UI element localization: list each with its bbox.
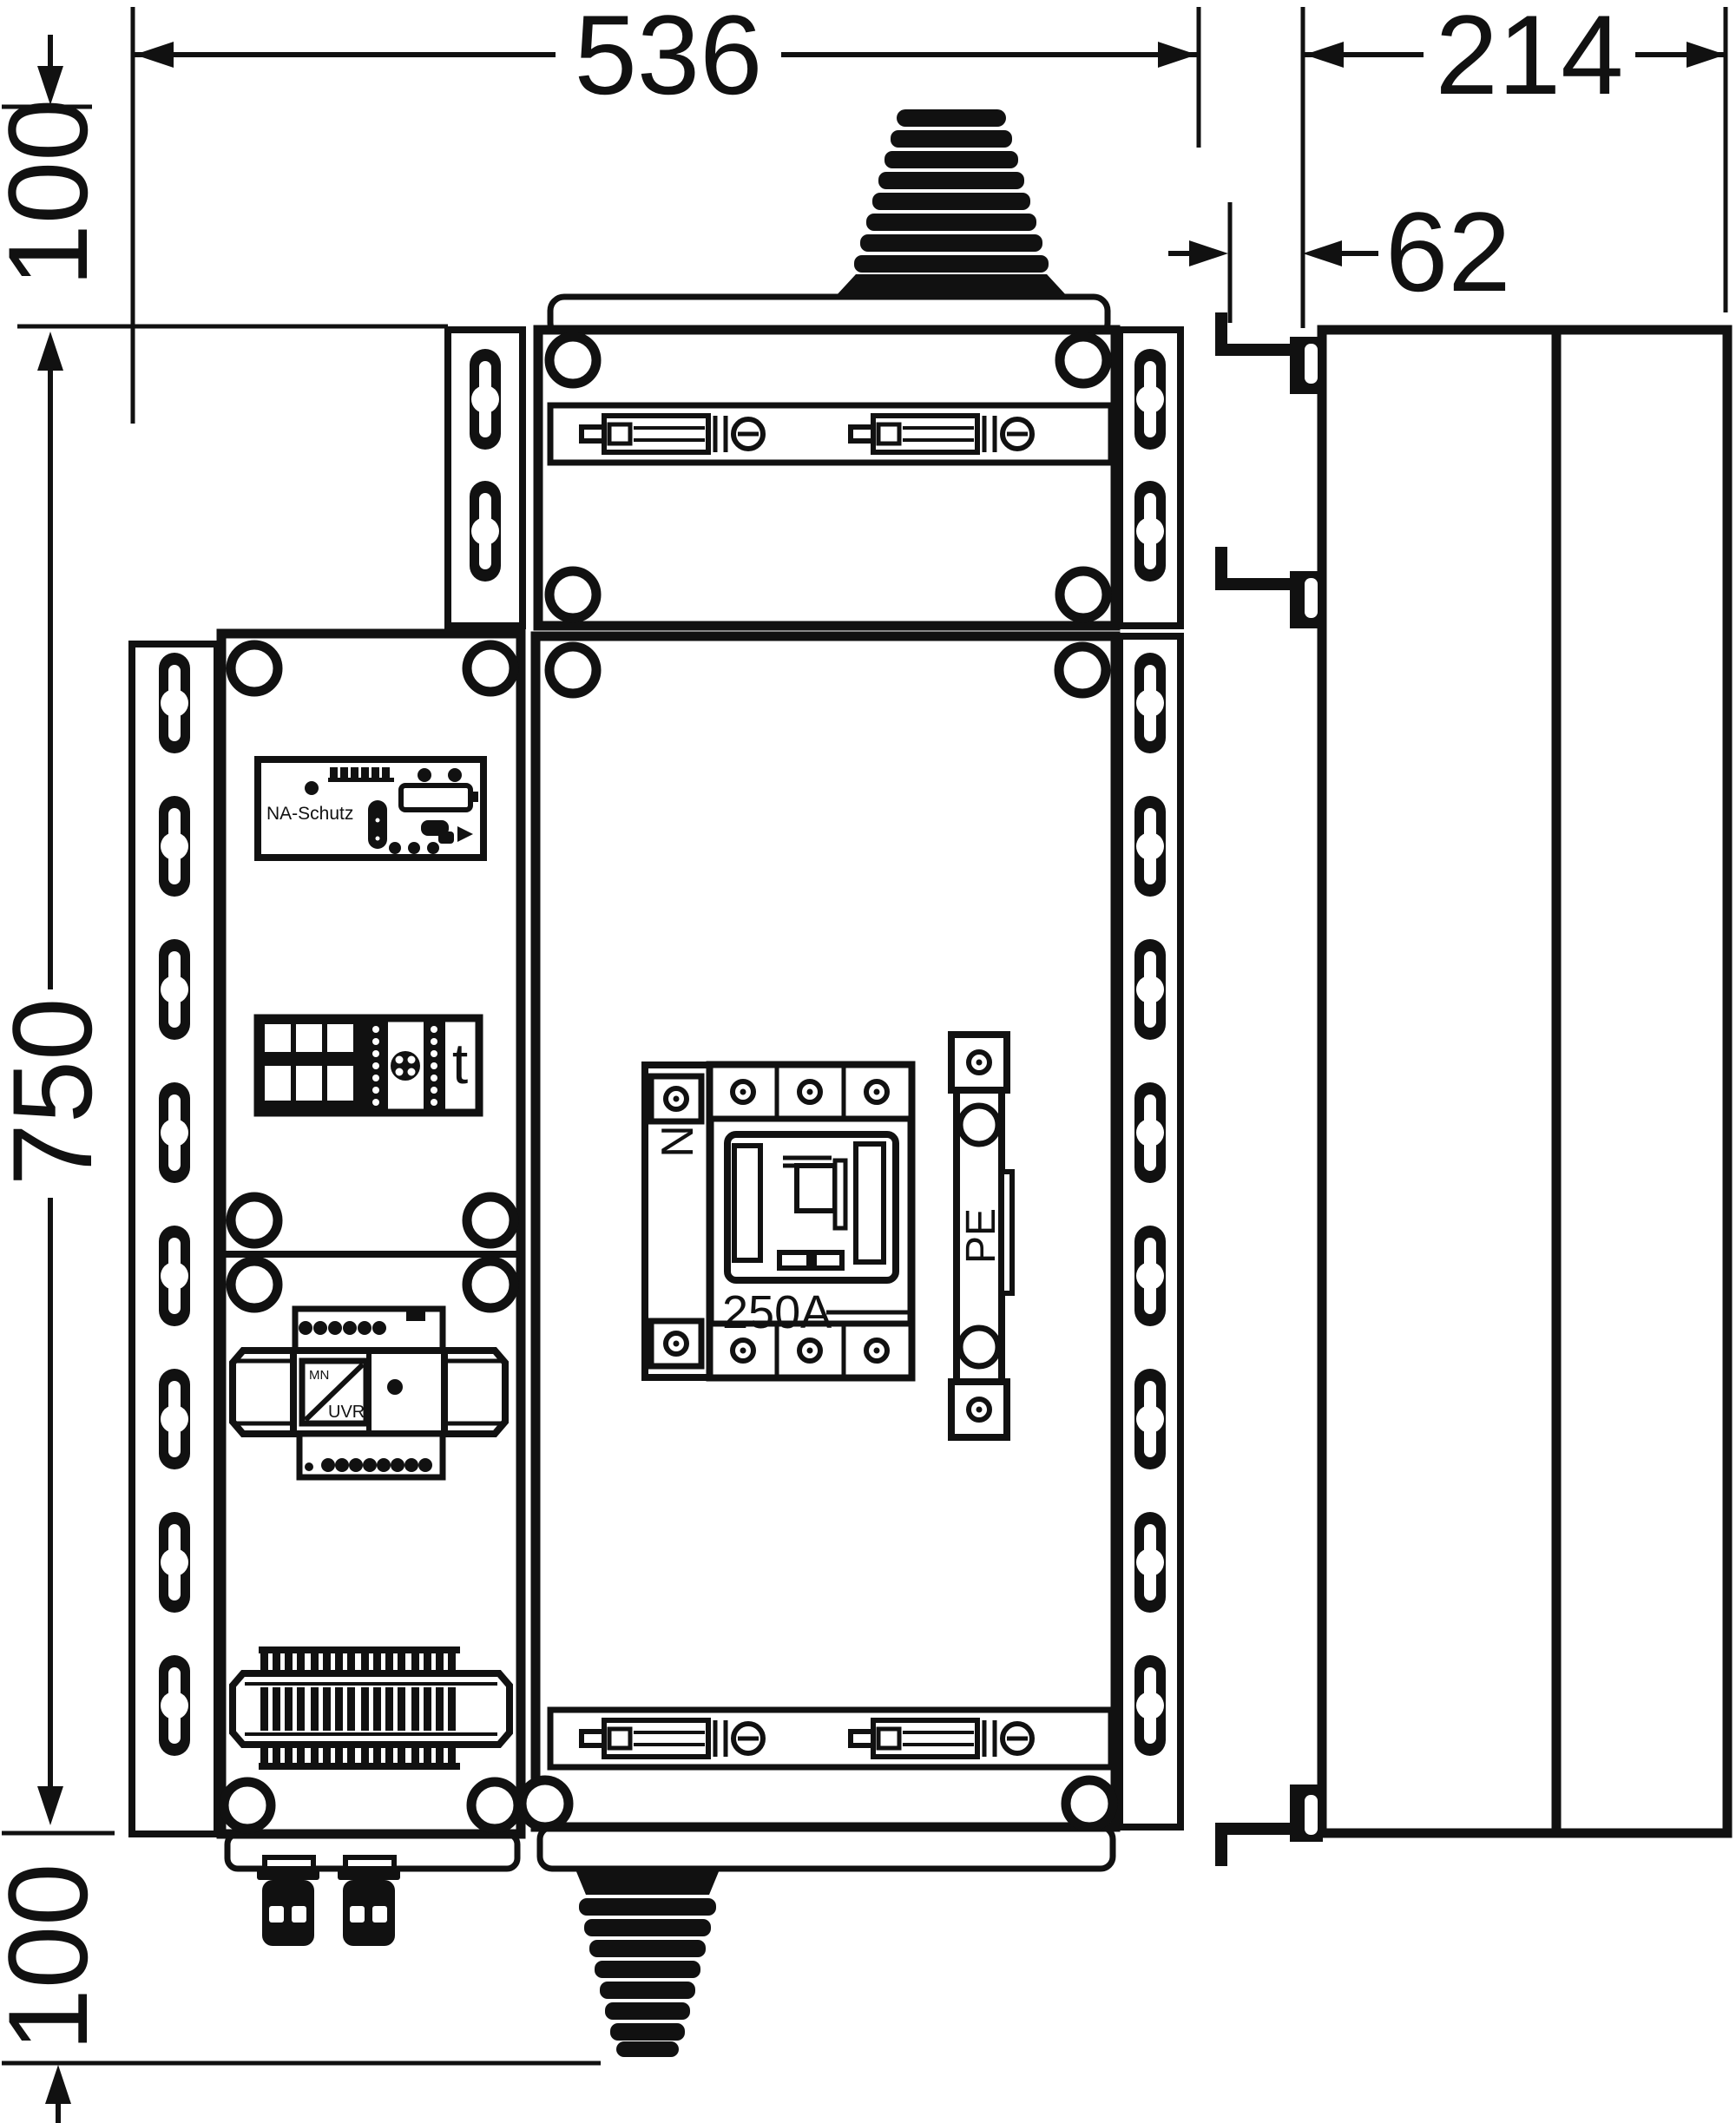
keyhole-slot-icon xyxy=(1134,653,1166,753)
technical-drawing-page: 536 214 62 100 750 100 xyxy=(0,0,1736,2123)
terminal-screw-icon xyxy=(799,1340,820,1361)
corner-screw-icon xyxy=(549,337,596,384)
led-icon xyxy=(387,1379,403,1395)
keyhole-slot-icon xyxy=(1134,1369,1166,1469)
keyhole-slot-icon xyxy=(1134,1655,1166,1756)
uvr-label: UVR xyxy=(328,1403,365,1422)
earth-label: PE xyxy=(958,1208,1004,1264)
side-view-body xyxy=(1322,330,1727,1833)
dimension-62: 62 xyxy=(1168,188,1511,323)
dimension-214: 214 xyxy=(1303,0,1726,328)
keyhole-slot-icon xyxy=(1134,796,1166,897)
arrow-left-icon xyxy=(1305,42,1344,68)
side-view xyxy=(1215,312,1727,1866)
dim-100-bottom-value: 100 xyxy=(0,1863,111,2052)
corner-screw-icon xyxy=(549,571,596,618)
breaker-rating-label: 250A xyxy=(722,1286,832,1338)
corner-screw-icon xyxy=(1066,1780,1113,1827)
keyhole-slot-icon xyxy=(1134,481,1166,582)
terminal-screw-icon xyxy=(866,1081,887,1102)
keyhole-slot-icon xyxy=(470,349,501,450)
corner-screw-icon xyxy=(467,1261,514,1308)
corner-screw-icon xyxy=(224,1782,271,1829)
uvr-mn-label: MN xyxy=(309,1368,329,1383)
terminal-screw-icon xyxy=(866,1340,887,1361)
keyhole-slot-icon xyxy=(159,939,190,1040)
neutral-label: N xyxy=(653,1125,703,1158)
corner-screw-icon xyxy=(549,647,596,693)
keyhole-slot-icon xyxy=(159,1226,190,1326)
corner-screw-icon xyxy=(1059,647,1106,693)
terminal-screw-icon xyxy=(733,1081,753,1102)
dim-214-value: 214 xyxy=(1436,0,1624,118)
timer-terminal-block: t xyxy=(258,1018,479,1113)
arrow-left-icon xyxy=(135,42,174,68)
arrow-left-icon xyxy=(1303,240,1342,266)
dim-100-top-value: 100 xyxy=(0,99,111,287)
led-icon xyxy=(448,768,462,782)
corner-screw-icon xyxy=(471,1782,518,1829)
keyhole-slot-icon xyxy=(159,1655,190,1756)
main-enclosure: N 250A xyxy=(522,636,1180,2057)
cable-gland-small-icon xyxy=(257,1857,319,1946)
arrow-up-icon xyxy=(45,2065,71,2104)
keyhole-slot-icon xyxy=(159,653,190,753)
terminal-screw-icon xyxy=(666,1088,687,1109)
cable-gland-top-icon xyxy=(835,109,1068,297)
toggle-icon xyxy=(797,1166,835,1211)
timer-label: t xyxy=(452,1031,468,1095)
arrow-right-icon xyxy=(1189,240,1228,266)
pe-terminal-bar: PE xyxy=(951,1035,1012,1437)
keyhole-slot-icon xyxy=(159,1369,190,1469)
cable-gland-bottom-icon xyxy=(575,1870,720,2057)
na-schutz-label: NA-Schutz xyxy=(266,804,353,824)
main-box-lid-bottom xyxy=(540,1827,1113,1869)
terminal-screw-icon xyxy=(799,1081,820,1102)
dimension-100-top: 100 xyxy=(0,35,111,286)
keyhole-slot-icon xyxy=(1134,939,1166,1040)
test-button-icon xyxy=(368,800,387,849)
keyhole-slot-icon xyxy=(159,796,190,897)
dim-62-value: 62 xyxy=(1385,188,1511,315)
arrow-down-icon xyxy=(37,1786,63,1825)
keyhole-slot-icon xyxy=(159,1512,190,1613)
arrow-up-icon xyxy=(37,332,63,371)
arrow-right-icon xyxy=(1687,42,1726,68)
terminal-screw-icon xyxy=(666,1333,687,1354)
corner-screw-icon xyxy=(522,1780,569,1827)
dim-536-value: 536 xyxy=(575,0,763,118)
corner-screw-icon xyxy=(231,1261,278,1308)
corner-screw-icon xyxy=(231,645,278,692)
corner-screw-icon xyxy=(1060,337,1107,384)
terminal-screw-icon xyxy=(969,1052,990,1073)
keyhole-slot-icon xyxy=(1134,1082,1166,1183)
main-switch-250a: N 250A xyxy=(645,1065,911,1377)
top-box-face xyxy=(538,330,1115,626)
wall-bracket-icon xyxy=(1215,547,1323,628)
na-schutz-module: NA-Schutz xyxy=(258,759,483,858)
keyhole-slot-icon xyxy=(1134,1512,1166,1613)
keyhole-slot-icon xyxy=(1134,1226,1166,1326)
arrow-right-icon xyxy=(1158,42,1197,68)
keyhole-slot-icon xyxy=(1134,349,1166,450)
corner-screw-icon xyxy=(231,1197,278,1244)
dim-750-value: 750 xyxy=(0,998,115,1186)
corner-screw-icon xyxy=(1060,571,1107,618)
enclosure-drawing: 536 214 62 100 750 100 xyxy=(0,0,1736,2123)
corner-screw-icon xyxy=(467,645,514,692)
top-enclosure xyxy=(448,109,1180,626)
clock-symbol-icon xyxy=(391,1051,420,1081)
keyhole-slot-icon xyxy=(159,1082,190,1183)
terminal-screw-icon xyxy=(969,1399,990,1420)
led-icon xyxy=(305,781,319,795)
terminal-screw-icon xyxy=(733,1340,753,1361)
led-icon xyxy=(418,768,431,782)
corner-screw-icon xyxy=(467,1197,514,1244)
left-enclosure: NA-Schutz t xyxy=(132,634,521,1946)
display-window xyxy=(401,785,470,810)
wall-bracket-icon xyxy=(1215,312,1323,394)
wall-bracket-icon xyxy=(1215,1785,1323,1866)
cable-gland-small-icon xyxy=(338,1857,400,1946)
keyhole-slot-icon xyxy=(470,481,501,582)
